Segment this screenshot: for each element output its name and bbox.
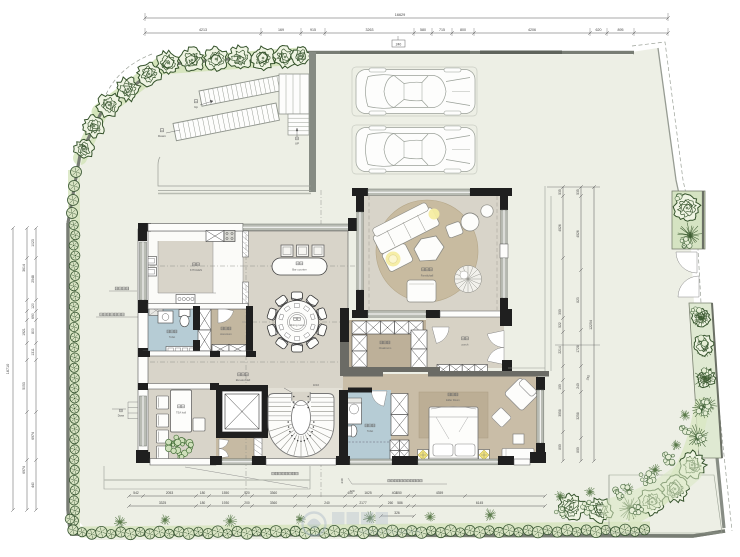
svg-text:240: 240	[324, 501, 330, 505]
svg-text:180: 180	[200, 501, 206, 505]
svg-text:2053: 2053	[166, 491, 174, 495]
svg-text:KITCHEN: KITCHEN	[190, 268, 202, 272]
svg-text:620: 620	[596, 28, 602, 32]
svg-text:260: 260	[388, 501, 394, 505]
svg-text:TEA hall: TEA hall	[176, 411, 186, 415]
svg-text:715: 715	[439, 28, 445, 32]
svg-text:200: 200	[244, 501, 250, 505]
svg-text:1930: 1930	[222, 501, 230, 505]
svg-text:6974: 6974	[22, 466, 26, 474]
svg-text:800: 800	[558, 444, 562, 450]
svg-text:Up: Up	[194, 105, 198, 109]
svg-text:4359: 4359	[436, 491, 444, 495]
svg-text:UP: UP	[295, 142, 299, 146]
svg-text:3258: 3258	[576, 412, 580, 420]
svg-text:1728: 1728	[576, 345, 580, 353]
svg-text:XINGZHI DECORATION: XINGZHI DECORATION	[359, 530, 420, 536]
svg-text:542: 542	[133, 491, 139, 495]
svg-text:823: 823	[576, 297, 580, 303]
svg-text:440: 440	[31, 482, 35, 488]
svg-text:690: 690	[31, 313, 35, 319]
svg-text:800: 800	[31, 328, 35, 334]
svg-text:storeroom: storeroom	[220, 332, 232, 336]
svg-text:ElevatorHall: ElevatorHall	[236, 378, 251, 382]
svg-text:522: 522	[558, 322, 562, 328]
svg-text:3325: 3325	[159, 501, 167, 505]
svg-text:6974: 6974	[31, 432, 35, 440]
svg-text:3360: 3360	[270, 501, 278, 505]
svg-text:326: 326	[394, 511, 400, 515]
svg-text:100: 100	[558, 384, 562, 390]
svg-text:240: 240	[396, 43, 402, 47]
svg-text:Toilet: Toilet	[169, 335, 176, 339]
svg-text:1550: 1550	[222, 491, 230, 495]
svg-text:180: 180	[200, 491, 206, 495]
svg-text:16710: 16710	[6, 364, 10, 375]
svg-text:Bar counter: Bar counter	[292, 268, 307, 272]
svg-text:1311: 1311	[31, 348, 35, 355]
svg-text:1F16: 1F16	[313, 383, 319, 387]
svg-text:3360: 3360	[270, 491, 278, 495]
svg-text:12254: 12254	[589, 320, 593, 330]
svg-text:2177: 2177	[359, 501, 367, 505]
svg-text:Down: Down	[158, 134, 166, 138]
svg-text:895: 895	[618, 28, 624, 32]
svg-text:Familyhall: Familyhall	[421, 274, 434, 278]
svg-text:6145: 6145	[476, 501, 484, 505]
svg-text:240: 240	[576, 383, 580, 389]
svg-text:Toilet: Toilet	[367, 429, 374, 433]
svg-text:4213: 4213	[199, 28, 207, 32]
svg-text:Dining room: Dining room	[289, 323, 305, 327]
svg-text:4026: 4026	[558, 224, 562, 232]
svg-text:120: 120	[31, 303, 35, 309]
svg-text:16629: 16629	[395, 13, 406, 17]
svg-text:650: 650	[396, 491, 402, 495]
svg-text:porch: porch	[462, 343, 469, 347]
svg-text:240: 240	[340, 478, 344, 483]
svg-text:3614: 3614	[22, 264, 26, 272]
svg-text:4206: 4206	[528, 28, 536, 32]
svg-text:520: 520	[244, 491, 250, 495]
svg-text:Elder Room: Elder Room	[446, 398, 460, 402]
svg-text:Down: Down	[118, 415, 125, 418]
svg-text:1625: 1625	[364, 491, 372, 495]
svg-text:300: 300	[558, 309, 562, 315]
svg-text:1023: 1023	[31, 239, 35, 247]
svg-text:3958: 3958	[558, 409, 562, 417]
svg-text:1921: 1921	[22, 328, 26, 336]
svg-text:535: 535	[576, 189, 580, 195]
svg-text:3263: 3263	[366, 28, 374, 32]
svg-text:4026: 4026	[576, 230, 580, 238]
svg-text:586: 586	[397, 501, 403, 505]
svg-text:5053: 5053	[22, 382, 26, 390]
svg-text:2548: 2548	[31, 275, 35, 283]
svg-text:800: 800	[460, 28, 466, 32]
svg-text:120: 120	[349, 489, 354, 493]
svg-text:2214: 2214	[558, 346, 562, 354]
svg-text:580: 580	[420, 28, 426, 32]
svg-text:Cloakroom: Cloakroom	[379, 346, 392, 350]
svg-text:535: 535	[558, 189, 562, 195]
svg-text:169: 169	[278, 28, 284, 32]
svg-text:915: 915	[310, 28, 316, 32]
svg-text:800: 800	[576, 447, 580, 453]
